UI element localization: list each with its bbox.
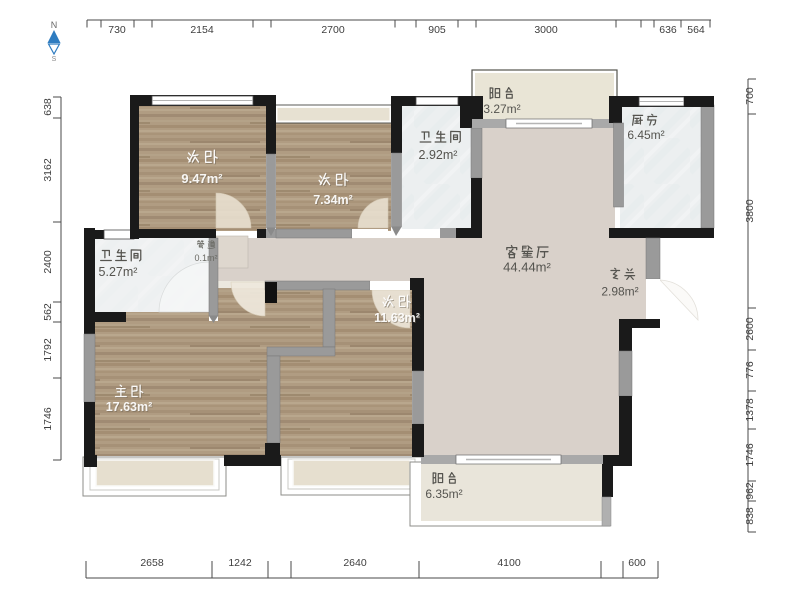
svg-text:11.63m²: 11.63m² (374, 311, 420, 325)
svg-text:6.35m²: 6.35m² (425, 487, 462, 501)
svg-text:730: 730 (108, 24, 126, 36)
svg-text:3162: 3162 (42, 158, 54, 182)
svg-text:3.27m²: 3.27m² (483, 102, 520, 116)
svg-text:44.44m²: 44.44m² (503, 260, 551, 275)
svg-text:700: 700 (744, 87, 756, 105)
svg-text:4100: 4100 (497, 557, 521, 569)
svg-text:562: 562 (42, 303, 54, 321)
svg-text:838: 838 (744, 507, 756, 525)
svg-text:1242: 1242 (228, 557, 252, 569)
svg-text:962: 962 (744, 482, 756, 500)
svg-text:564: 564 (687, 24, 705, 36)
svg-text:1746: 1746 (744, 443, 756, 467)
svg-text:2640: 2640 (343, 557, 367, 569)
svg-text:7.34m²: 7.34m² (313, 193, 353, 207)
svg-text:N: N (51, 20, 58, 30)
svg-text:2154: 2154 (190, 24, 214, 36)
svg-text:2658: 2658 (140, 557, 164, 569)
svg-text:2.92m²: 2.92m² (419, 148, 458, 162)
svg-text:5.27m²: 5.27m² (99, 265, 138, 279)
svg-text:2600: 2600 (744, 317, 756, 341)
svg-text:2400: 2400 (42, 250, 54, 274)
svg-text:17.63m²: 17.63m² (106, 400, 153, 414)
svg-text:636: 636 (659, 24, 677, 36)
svg-text:905: 905 (428, 24, 446, 36)
svg-text:0.1m²: 0.1m² (194, 253, 217, 263)
svg-text:2700: 2700 (321, 24, 345, 36)
svg-text:3800: 3800 (744, 199, 756, 223)
svg-text:3000: 3000 (534, 24, 558, 36)
svg-text:776: 776 (744, 361, 756, 379)
svg-text:1792: 1792 (42, 338, 54, 362)
svg-text:638: 638 (42, 98, 54, 116)
svg-text:1746: 1746 (42, 407, 54, 431)
svg-text:S: S (52, 56, 57, 63)
svg-text:600: 600 (628, 557, 646, 569)
svg-text:9.47m²: 9.47m² (181, 171, 223, 186)
svg-text:1378: 1378 (744, 398, 756, 422)
svg-text:6.45m²: 6.45m² (627, 128, 664, 142)
svg-text:2.98m²: 2.98m² (601, 285, 638, 299)
